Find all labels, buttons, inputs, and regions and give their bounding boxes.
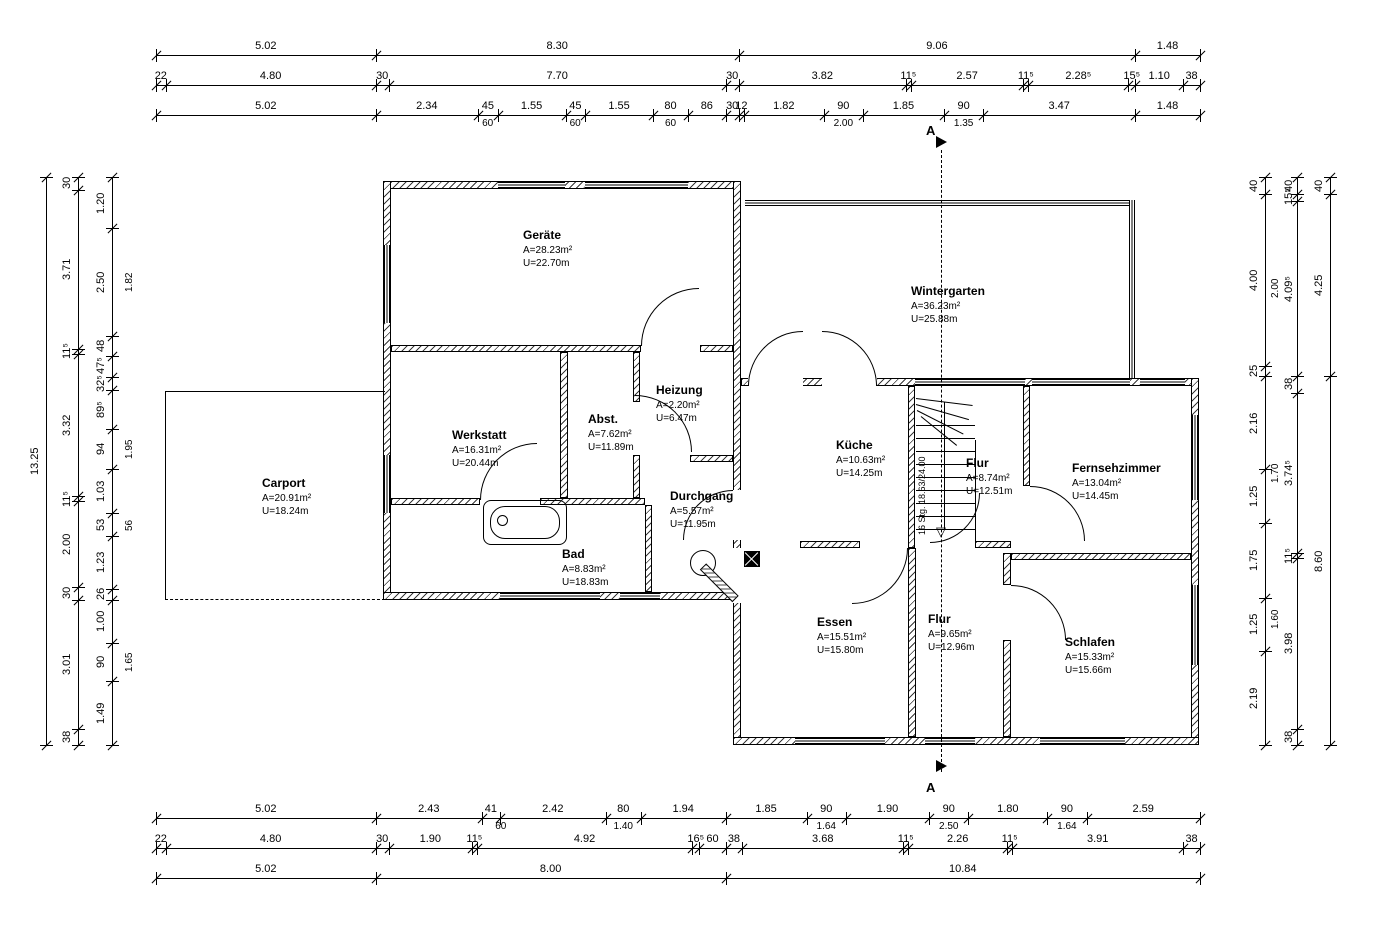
room-perimeter: U=6.47m	[656, 413, 697, 424]
room-name: Essen	[817, 615, 866, 631]
floor-plan-canvas: ▽ 16 Stg. 18.63/24.00 A A Geräte A=28.23…	[0, 0, 1387, 933]
dim-label: 1.48	[1133, 100, 1203, 112]
dim-label: 90	[791, 803, 861, 815]
dim-label: 7.70	[522, 70, 592, 82]
door-arc-schlafen	[1011, 585, 1066, 640]
dim-label: 11⁵	[975, 833, 1045, 845]
dim-sublabel: 1.82	[124, 247, 137, 317]
dim-label: 4.92	[550, 833, 620, 845]
room-name: Abst.	[588, 412, 634, 428]
dim-sublabel: 60	[466, 821, 536, 832]
dim-label: 38	[1157, 70, 1227, 82]
room-label-durchgang: Durchgang A=5.57m² U=11.95m	[670, 489, 733, 531]
window	[384, 245, 390, 323]
dim-label: 4.80	[236, 70, 306, 82]
wall-kueche-essen	[800, 541, 860, 548]
dim-label: 38	[699, 833, 769, 845]
dim-line	[1330, 177, 1331, 745]
dim-label: 2.50	[95, 247, 109, 317]
dim-label: 90	[929, 100, 999, 112]
dim-label: 2.34	[392, 100, 462, 112]
dim-line	[156, 848, 1200, 849]
dim-label: 9.06	[902, 40, 972, 52]
room-name: Heizung	[656, 383, 703, 399]
room-name: Geräte	[523, 228, 572, 244]
dim-label: 41	[456, 803, 526, 815]
room-perimeter: U=14.45m	[1072, 491, 1118, 502]
window	[1192, 415, 1198, 500]
room-perimeter: U=18.24m	[262, 506, 308, 517]
room-area: A=8.74m²	[966, 473, 1010, 484]
dim-label: 5.02	[231, 863, 301, 875]
dim-sublabel: 60	[540, 118, 610, 129]
room-label-flur-lower: Flur A=9.65m² U=12.96m	[928, 612, 974, 654]
carport-edge-left	[165, 391, 166, 600]
window	[795, 738, 885, 744]
window	[498, 182, 565, 188]
room-area: A=10.63m²	[836, 455, 885, 466]
room-perimeter: U=14.25m	[836, 468, 882, 479]
room-area: A=2.20m²	[656, 400, 700, 411]
room-perimeter: U=12.96m	[928, 642, 974, 653]
room-label-abst: Abst. A=7.62m² U=11.89m	[588, 412, 634, 454]
room-area: A=20.91m²	[262, 493, 311, 504]
room-label-fernsehzimmer: Fernsehzimmer A=13.04m² U=14.45m	[1072, 461, 1161, 503]
room-label-geraete: Geräte A=28.23m² U=22.70m	[523, 228, 572, 270]
section-arrow-top-icon	[936, 136, 947, 148]
dim-label: 38	[1283, 702, 1297, 772]
dim-sublabel: 56	[124, 490, 137, 560]
room-area: A=8.83m²	[562, 564, 606, 575]
window	[653, 182, 688, 188]
section-line	[941, 150, 942, 772]
room-perimeter: U=12.51m	[966, 486, 1012, 497]
window	[1032, 379, 1130, 385]
dim-label: 5.02	[231, 803, 301, 815]
dim-sublabel: 1.70	[1270, 438, 1283, 508]
dim-label: 2.43	[394, 803, 464, 815]
dim-label: 3.98	[1283, 608, 1297, 678]
wall-werkstatt-abst	[560, 352, 568, 498]
dim-label: 3.82	[787, 70, 857, 82]
door-arc-essen	[852, 548, 908, 604]
room-perimeter: U=15.66m	[1065, 665, 1111, 676]
room-perimeter: U=15.80m	[817, 645, 863, 656]
dim-label: 38	[1283, 349, 1297, 419]
dim-label: 15⁵	[1283, 162, 1297, 232]
dim-label: 3.32	[61, 390, 75, 460]
dim-line	[112, 177, 113, 745]
wall-geraete-werkstatt	[391, 345, 641, 352]
dim-label: 1.90	[853, 803, 923, 815]
wall-stair-left	[908, 386, 915, 548]
wall-heizung-bottom	[690, 455, 733, 462]
dim-label: 11⁵	[439, 833, 509, 845]
room-perimeter: U=11.89m	[588, 442, 634, 453]
dim-label: 3.01	[61, 629, 75, 699]
dim-label: 3.68	[788, 833, 858, 845]
dim-label: 30	[347, 70, 417, 82]
dim-label: 30	[61, 148, 75, 218]
dim-sublabel: 1.60	[1270, 584, 1283, 654]
dim-label: 5.02	[231, 100, 301, 112]
door-arc-wintergarten-1	[748, 331, 803, 386]
carport-edge-top	[165, 391, 385, 392]
window	[1140, 379, 1185, 385]
dim-label: 8.60	[1313, 526, 1327, 596]
room-name: Flur	[928, 612, 974, 628]
dim-label: 1.25	[1248, 461, 1262, 531]
room-name: Fernsehzimmer	[1072, 461, 1161, 477]
dim-label: 11⁵	[61, 316, 75, 386]
room-perimeter: U=25.88m	[911, 314, 957, 325]
dim-label: 3.91	[1063, 833, 1133, 845]
dim-label: 11⁵	[1283, 521, 1297, 591]
dim-sublabel: 2.00	[1270, 253, 1283, 323]
room-area: A=36.23m²	[911, 301, 960, 312]
stair-direction-line	[944, 402, 945, 530]
dim-label: 40	[1313, 151, 1327, 221]
dim-label: 4.09⁵	[1283, 254, 1297, 324]
dim-label: 1.20	[95, 168, 109, 238]
dim-line	[156, 818, 1200, 819]
room-area: A=7.62m²	[588, 429, 632, 440]
wall-bad-right	[645, 505, 652, 592]
room-name: Durchgang	[670, 489, 733, 505]
wall-flur-schlafen-a	[1003, 553, 1011, 585]
dim-label: 3.71	[61, 234, 75, 304]
dim-label: 38	[1157, 833, 1227, 845]
dim-label: 1.48	[1133, 40, 1203, 52]
wall-geraete-stub	[700, 345, 733, 352]
window	[620, 593, 660, 599]
section-label-bottom: A	[926, 780, 935, 795]
dim-line	[78, 177, 79, 745]
room-perimeter: U=22.70m	[523, 258, 569, 269]
dim-sublabel: 2.50	[914, 821, 984, 832]
dim-label: 1.25	[1248, 589, 1262, 659]
room-area: A=28.23m²	[523, 245, 572, 256]
wall-bad-top-a	[391, 498, 480, 505]
room-label-carport: Carport A=20.91m² U=18.24m	[262, 476, 311, 518]
dim-label: 3.74⁵	[1283, 438, 1297, 508]
dim-sublabel: 1.64	[791, 821, 861, 832]
room-name: Flur	[966, 456, 1012, 472]
dim-line	[46, 177, 47, 745]
room-name: Bad	[562, 547, 608, 563]
dim-sublabel: 60	[453, 118, 523, 129]
room-name: Carport	[262, 476, 311, 492]
room-area: A=15.33m²	[1065, 652, 1114, 663]
wall-flur-fernseh	[1023, 386, 1030, 486]
dim-label: 90	[1032, 803, 1102, 815]
room-area: A=16.31m²	[452, 445, 501, 456]
dim-line	[156, 85, 1200, 86]
opening-kueche-durchgang	[732, 490, 742, 540]
dim-label: 2.59	[1108, 803, 1178, 815]
stair-note: 16 Stg. 18.63/24.00	[917, 410, 927, 535]
dim-line	[156, 55, 1200, 56]
dim-label: 4.80	[236, 833, 306, 845]
wall-middle-spine	[733, 181, 741, 745]
wall-abst-heizung-b	[633, 455, 640, 498]
room-name: Werkstatt	[452, 428, 506, 444]
chimney-icon	[744, 551, 760, 567]
room-label-flur-upper: Flur A=8.74m² U=12.51m	[966, 456, 1012, 498]
room-area: A=13.04m²	[1072, 478, 1121, 489]
dim-label: 1.75	[1248, 525, 1262, 595]
window	[500, 593, 600, 599]
room-label-schlafen: Schlafen A=15.33m² U=15.66m	[1065, 635, 1115, 677]
dim-label: 30	[697, 70, 767, 82]
dim-sublabel: 60	[636, 118, 706, 129]
wintergarten-glazing-top	[745, 200, 1135, 206]
window	[384, 455, 390, 513]
room-name: Schlafen	[1065, 635, 1115, 651]
door-arc-wintergarten-2	[822, 331, 877, 386]
wall-schlafen-top	[1011, 553, 1191, 560]
dim-label: 5.02	[231, 40, 301, 52]
dim-sublabel: 1.65	[124, 627, 137, 697]
dim-label: 38	[61, 702, 75, 772]
section-arrow-bottom-icon	[936, 760, 947, 772]
room-area: A=15.51m²	[817, 632, 866, 643]
dim-label: 1.49	[95, 678, 109, 748]
room-label-heizung: Heizung A=2.20m² U=6.47m	[656, 383, 703, 425]
dim-sublabel: 1.40	[588, 821, 658, 832]
room-perimeter: U=18.83m	[562, 577, 608, 588]
dim-label: 8.00	[516, 863, 586, 875]
dim-line	[1265, 177, 1266, 745]
door-arc-geraete	[641, 288, 699, 346]
dim-sublabel: 2.00	[808, 118, 878, 129]
window	[1040, 738, 1125, 744]
room-area: A=5.57m²	[670, 506, 714, 517]
room-label-werkstatt: Werkstatt A=16.31m² U=20.44m	[452, 428, 506, 470]
window	[1192, 585, 1198, 665]
dim-label: 2.19	[1248, 663, 1262, 733]
room-label-essen: Essen A=15.51m² U=15.80m	[817, 615, 866, 657]
wall-flur-schlafen-b	[1003, 640, 1011, 737]
dim-sublabel: 1.35	[929, 118, 999, 129]
dim-label: 40	[1248, 151, 1262, 221]
dim-label: 8.30	[522, 40, 592, 52]
room-label-bad: Bad A=8.83m² U=18.83m	[562, 547, 608, 589]
room-perimeter: U=20.44m	[452, 458, 498, 469]
room-name: Küche	[836, 438, 885, 454]
dim-label: 3.47	[1024, 100, 1094, 112]
dim-label: 10.84	[928, 863, 998, 875]
room-name: Wintergarten	[911, 284, 985, 300]
room-label-wintergarten: Wintergarten A=36.23m² U=25.88m	[911, 284, 985, 326]
room-perimeter: U=11.95m	[670, 519, 716, 530]
window	[925, 738, 975, 744]
dim-label: 13.25	[29, 426, 43, 496]
room-label-kueche: Küche A=10.63m² U=14.25m	[836, 438, 885, 480]
dim-label: 30	[61, 558, 75, 628]
dim-label: 4.25	[1313, 250, 1327, 320]
dim-label: 4.00	[1248, 245, 1262, 315]
window	[585, 182, 653, 188]
room-area: A=9.65m²	[928, 629, 972, 640]
wintergarten-glazing-right	[1129, 200, 1135, 378]
dim-sublabel: 1.64	[1032, 821, 1102, 832]
dim-sublabel: 1.95	[124, 414, 137, 484]
dim-label: 2.16	[1248, 388, 1262, 458]
dim-label: 22	[126, 70, 196, 82]
dim-label: 22	[126, 833, 196, 845]
dim-label: 2.42	[518, 803, 588, 815]
wall-flur-mid	[975, 541, 1011, 548]
dim-line	[1297, 177, 1298, 745]
dim-line	[156, 878, 1200, 879]
wall-essen-flur	[908, 548, 916, 737]
dim-label: 1.94	[648, 803, 718, 815]
window	[915, 379, 1025, 385]
dim-line	[156, 115, 1200, 116]
bathtub-drain	[497, 515, 508, 526]
carport-edge-bottom-dashed	[165, 599, 385, 600]
